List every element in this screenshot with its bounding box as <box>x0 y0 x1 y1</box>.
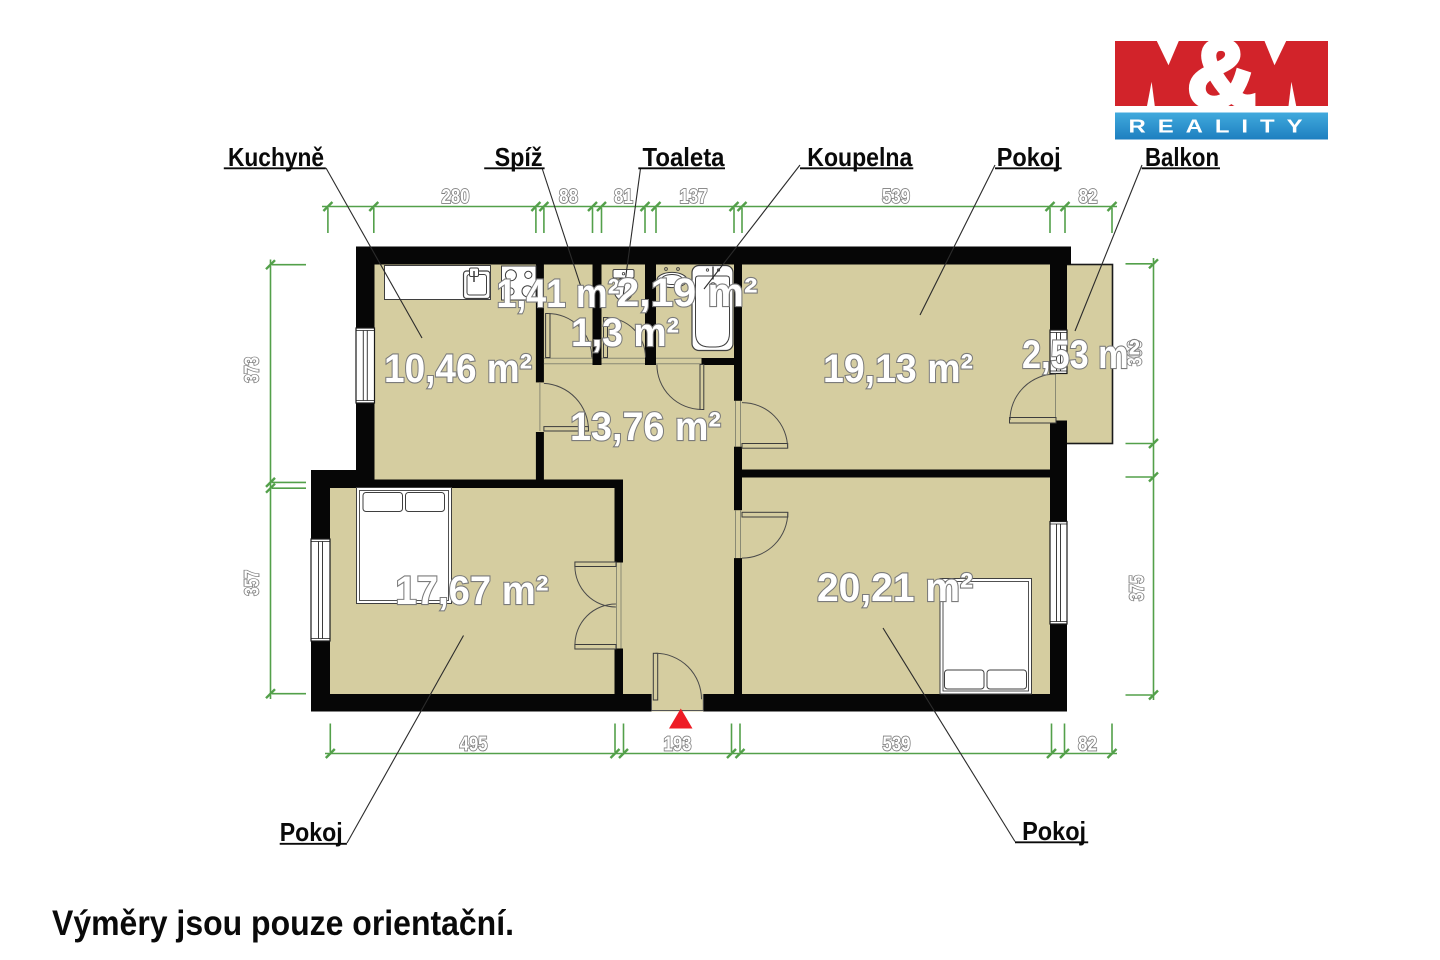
svg-text:280: 280 <box>442 186 470 208</box>
svg-text:10,46 m²: 10,46 m² <box>384 347 532 391</box>
svg-text:495: 495 <box>460 734 488 756</box>
svg-text:Pokoj: Pokoj <box>280 817 343 847</box>
svg-text:81: 81 <box>614 186 633 208</box>
svg-text:2,53 m²: 2,53 m² <box>1022 333 1140 377</box>
svg-text:REALITY: REALITY <box>1129 117 1315 137</box>
svg-text:13,76 m²: 13,76 m² <box>570 405 721 449</box>
svg-text:373: 373 <box>242 357 264 383</box>
svg-text:193: 193 <box>664 734 692 756</box>
svg-text:375: 375 <box>1127 575 1149 601</box>
svg-text:Výměry jsou pouze orientační.: Výměry jsou pouze orientační. <box>52 904 514 943</box>
svg-text:539: 539 <box>882 186 910 208</box>
svg-text:137: 137 <box>680 186 708 208</box>
svg-text:2,19 m²: 2,19 m² <box>617 271 758 315</box>
svg-text:82: 82 <box>1078 734 1097 756</box>
svg-text:20,21 m²: 20,21 m² <box>817 566 973 610</box>
svg-text:539: 539 <box>883 734 911 756</box>
svg-text:&: & <box>1187 21 1256 127</box>
svg-text:17,67 m²: 17,67 m² <box>396 569 549 613</box>
svg-text:82: 82 <box>1079 186 1098 208</box>
svg-text:1,3 m²: 1,3 m² <box>571 311 679 355</box>
svg-text:357: 357 <box>242 570 264 596</box>
svg-text:1,41 m²: 1,41 m² <box>497 272 620 316</box>
svg-text:88: 88 <box>559 186 578 208</box>
svg-text:19,13 m²: 19,13 m² <box>823 347 973 391</box>
